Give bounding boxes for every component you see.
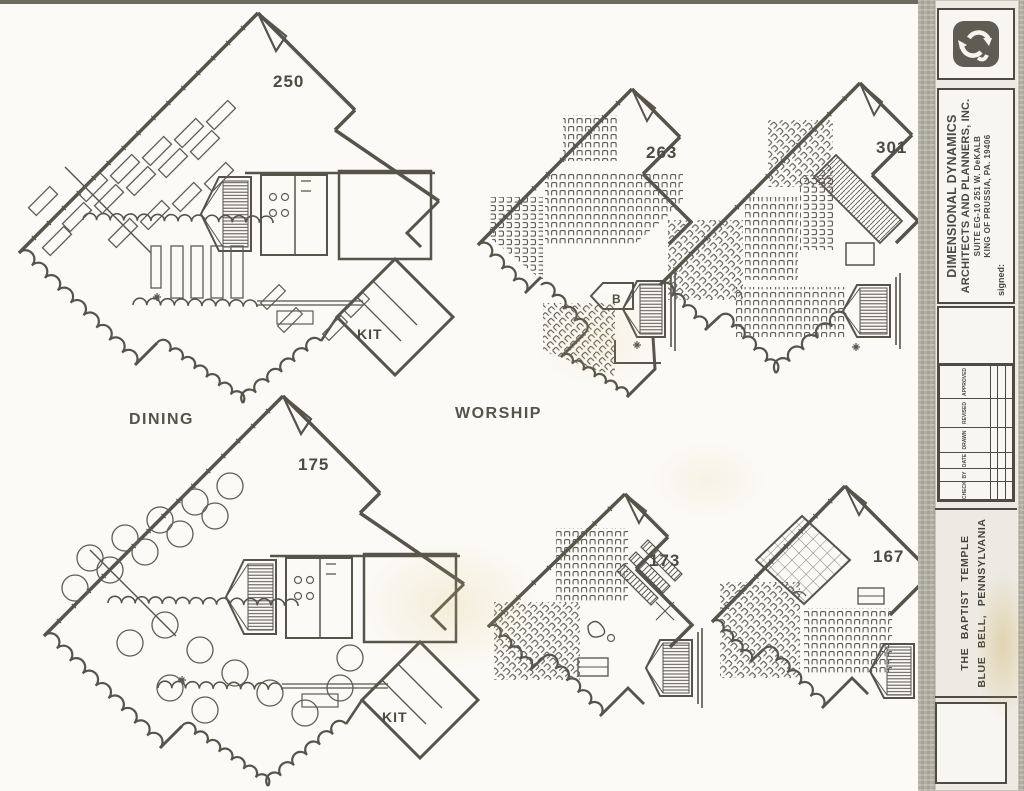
accordion-wall-edge — [266, 721, 346, 786]
plan-capacity-number: 175 — [298, 455, 329, 474]
stool-icon — [608, 635, 615, 642]
accordion-wall-edge — [44, 633, 163, 748]
wall — [160, 726, 182, 748]
round-dining-table — [77, 545, 103, 571]
classroom-table — [109, 219, 138, 248]
floor-plan-175: 175KIT — [30, 388, 482, 791]
firm-logo-box — [937, 8, 1015, 80]
round-dining-table — [182, 489, 208, 515]
firm-address-line2: KING OF PRUSSIA, PA. 19406 — [983, 90, 993, 302]
seating-area — [804, 608, 892, 674]
cross-brace — [656, 602, 674, 620]
plan-capacity-number: 167 — [873, 547, 904, 566]
revision-column-header: DATE — [940, 453, 991, 469]
worktable — [261, 285, 286, 310]
platform-edge — [282, 684, 388, 688]
shaft-wall — [896, 273, 900, 349]
revision-column-header: DRAWN — [940, 428, 991, 453]
seating-area — [735, 287, 846, 337]
classroom-table — [171, 246, 183, 298]
round-dining-table — [112, 525, 138, 551]
wall — [600, 688, 644, 716]
revision-table: CHECKED BY DATE DRAWN REVISED APPROVED — [939, 365, 1013, 500]
reference-mark — [153, 293, 161, 301]
seating-area — [556, 528, 628, 602]
classroom-table — [173, 183, 202, 212]
kitchen-label: KIT — [357, 326, 383, 342]
round-dining-table — [192, 697, 218, 723]
firm-address-line1: SUITE EG-10 251 W. DeKALB — [973, 90, 983, 302]
wall — [822, 678, 868, 708]
seating-area — [800, 175, 835, 250]
seating-area — [563, 115, 617, 161]
signed-label: signed: — [996, 90, 1006, 296]
seal-box — [935, 702, 1007, 784]
plumbing-fixture — [307, 577, 314, 584]
plumbing-fixture — [270, 210, 277, 217]
curtain-wall-ticks — [57, 409, 270, 623]
stair-icon — [663, 643, 689, 693]
seating-area — [543, 303, 615, 377]
vestibule-flag — [625, 494, 646, 523]
seating-area — [720, 582, 800, 678]
project-name-line1: THE BAPTIST TEMPLE — [957, 510, 974, 696]
vestibule-flag — [845, 486, 866, 515]
wall — [346, 700, 362, 724]
stair-icon — [248, 564, 273, 630]
classroom-table — [191, 246, 203, 298]
reference-mark — [852, 343, 860, 351]
classroom-table — [211, 246, 223, 298]
sound-room — [846, 243, 874, 265]
wall — [321, 317, 337, 341]
title-block-sidebar: DIMENSIONAL DYNAMICS ARCHITECTS AND PLAN… — [918, 0, 1024, 791]
plumbing-fixture — [282, 194, 289, 201]
curtain-wall-ticks — [32, 26, 245, 240]
stair-icon — [223, 181, 248, 247]
round-dining-table — [257, 680, 283, 706]
seating-area — [494, 602, 580, 680]
round-dining-table — [202, 503, 228, 529]
seating-area — [489, 197, 543, 281]
plan-capacity-number: 301 — [876, 138, 907, 157]
worship-section-label: WORSHIP — [455, 405, 542, 423]
dining-section-label: DINING — [129, 411, 194, 429]
seating-area — [745, 197, 798, 280]
plumbing-fixture — [282, 210, 289, 217]
piano-icon — [588, 622, 605, 638]
classroom-table — [29, 187, 58, 216]
sink-counter — [301, 181, 311, 191]
plumbing-fixture — [307, 593, 314, 600]
round-dining-table — [337, 645, 363, 671]
revision-table-block: CHECKED BY DATE DRAWN REVISED APPROVED — [937, 306, 1015, 502]
reference-mark — [633, 341, 641, 349]
plumbing-fixture — [270, 194, 277, 201]
accordion-wall-edge — [182, 723, 269, 786]
classroom-table — [151, 246, 161, 288]
floor-plan-250: 250KIT — [5, 5, 457, 411]
round-dining-table — [132, 539, 158, 565]
recycle-arrows-icon — [948, 16, 1004, 72]
classroom-table — [231, 246, 243, 298]
revision-column-header: CHECKED — [940, 482, 991, 500]
round-dining-table — [292, 700, 318, 726]
scan-edge-top — [0, 0, 1024, 4]
revision-column-header: BY — [940, 469, 991, 482]
firm-identification-block: DIMENSIONAL DYNAMICS ARCHITECTS AND PLAN… — [937, 88, 1015, 304]
wall — [407, 201, 439, 247]
plan-capacity-number: 250 — [273, 72, 304, 91]
round-dining-table — [187, 637, 213, 663]
kitchen-wing-wall — [362, 642, 478, 758]
stair-icon — [887, 647, 911, 695]
firm-name-line1: DIMENSIONAL DYNAMICS — [946, 90, 960, 302]
plumbing-fixture — [295, 577, 302, 584]
round-dining-table — [167, 521, 193, 547]
accordion-wall-edge — [19, 250, 138, 365]
revision-column-header: APPROVED — [940, 366, 991, 399]
revision-column-header: REVISED — [940, 399, 991, 428]
plumbing-fixture — [295, 593, 302, 600]
kitchen-wing-wall — [337, 259, 453, 375]
floor-plan-167: 167 — [700, 482, 936, 744]
title-block-panel: DIMENSIONAL DYNAMICS ARCHITECTS AND PLAN… — [935, 0, 1019, 791]
classroom-table — [207, 101, 236, 130]
floor-plan-301: 301 — [650, 75, 922, 403]
project-name-line2: BLUE BELL, PENNSYLVANIA — [974, 510, 991, 696]
classroom-table — [43, 227, 72, 256]
wall — [432, 584, 464, 630]
round-dining-table — [117, 630, 143, 656]
wall — [135, 343, 157, 365]
project-title-block: THE BAPTIST TEMPLE BLUE BELL, PENNSYLVAN… — [935, 508, 1017, 698]
kitchen-label: KIT — [382, 709, 408, 725]
round-dining-table — [217, 473, 243, 499]
stair-icon — [860, 288, 887, 334]
wing-partition — [90, 550, 176, 636]
round-dining-table — [157, 675, 183, 701]
accordion-partition — [133, 298, 257, 307]
floor-plan-173: 173 — [478, 490, 710, 742]
seating-area — [668, 220, 743, 300]
plan-capacity-number: 173 — [649, 551, 680, 570]
revision-table-empty-cell — [939, 308, 1013, 365]
balcony-label: B — [612, 292, 622, 306]
round-dining-table — [62, 575, 88, 601]
firm-name-line2: ARCHITECTS AND PLANNERS, INC. — [960, 90, 973, 302]
sink-counter — [326, 564, 336, 574]
